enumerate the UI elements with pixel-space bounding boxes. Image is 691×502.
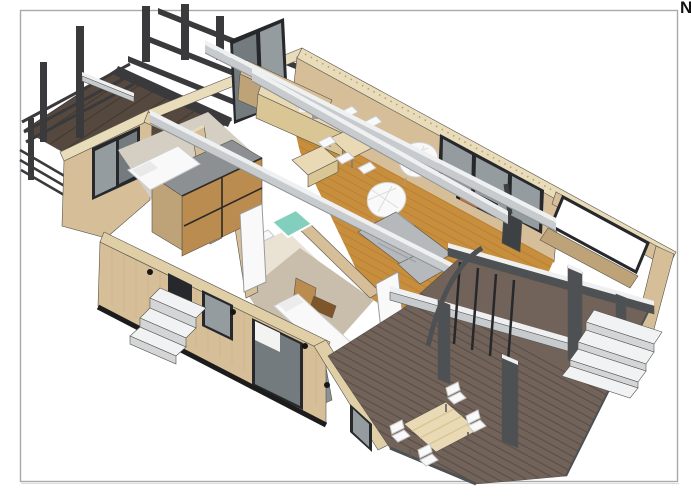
pergola-post	[438, 300, 450, 384]
pergola-post	[142, 6, 150, 62]
wall-lamp	[324, 382, 330, 388]
floorplan-3d-render: N	[0, 0, 691, 502]
wall-lamp	[302, 343, 308, 349]
pergola-post	[502, 356, 518, 448]
north-corner-label: N	[680, 0, 691, 17]
interior-door	[240, 204, 266, 292]
pergola-post	[76, 26, 84, 138]
wall-lamp	[230, 309, 236, 315]
pergola-post	[40, 62, 47, 142]
pergola-post	[28, 118, 34, 180]
wall-lamp	[147, 269, 153, 275]
